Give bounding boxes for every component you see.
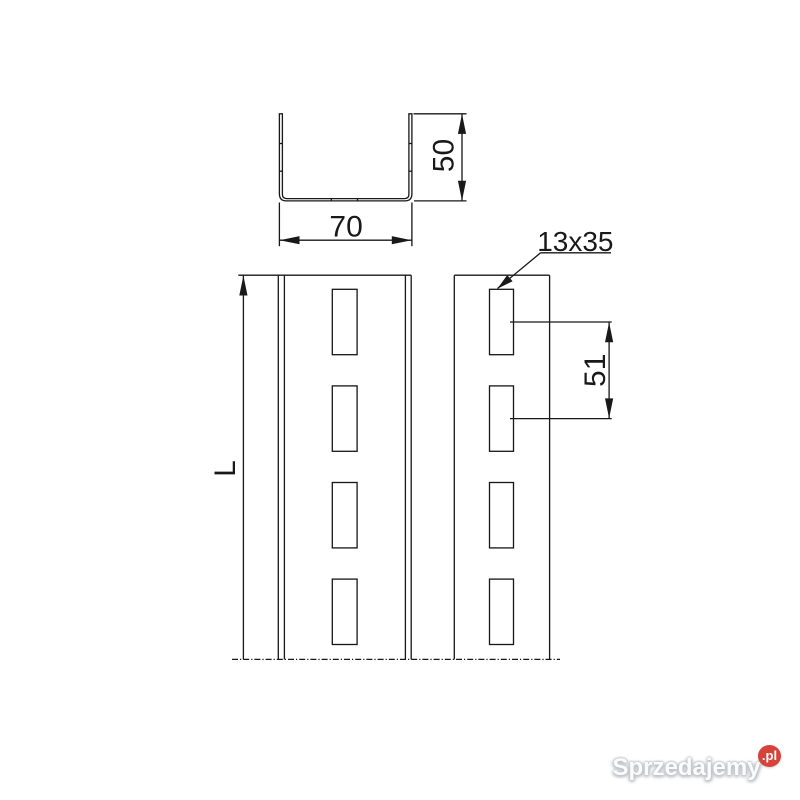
svg-text:51: 51: [579, 354, 612, 387]
svg-text:50: 50: [428, 139, 461, 172]
svg-text:L: L: [209, 460, 242, 477]
svg-text:13x35: 13x35: [537, 226, 613, 257]
svg-text:70: 70: [329, 210, 362, 243]
